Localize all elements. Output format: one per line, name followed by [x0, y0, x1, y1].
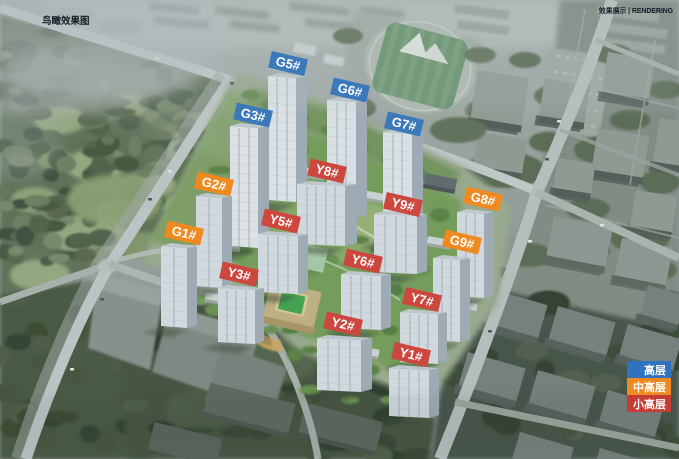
svg-text:小高层: 小高层 — [632, 397, 666, 411]
svg-text:中高层: 中高层 — [633, 380, 666, 394]
svg-text:鸟瞰效果图: 鸟瞰效果图 — [42, 15, 90, 27]
svg-text:高层: 高层 — [644, 363, 666, 377]
svg-text:效果展示 | RENDERING: 效果展示 | RENDERING — [599, 6, 674, 15]
